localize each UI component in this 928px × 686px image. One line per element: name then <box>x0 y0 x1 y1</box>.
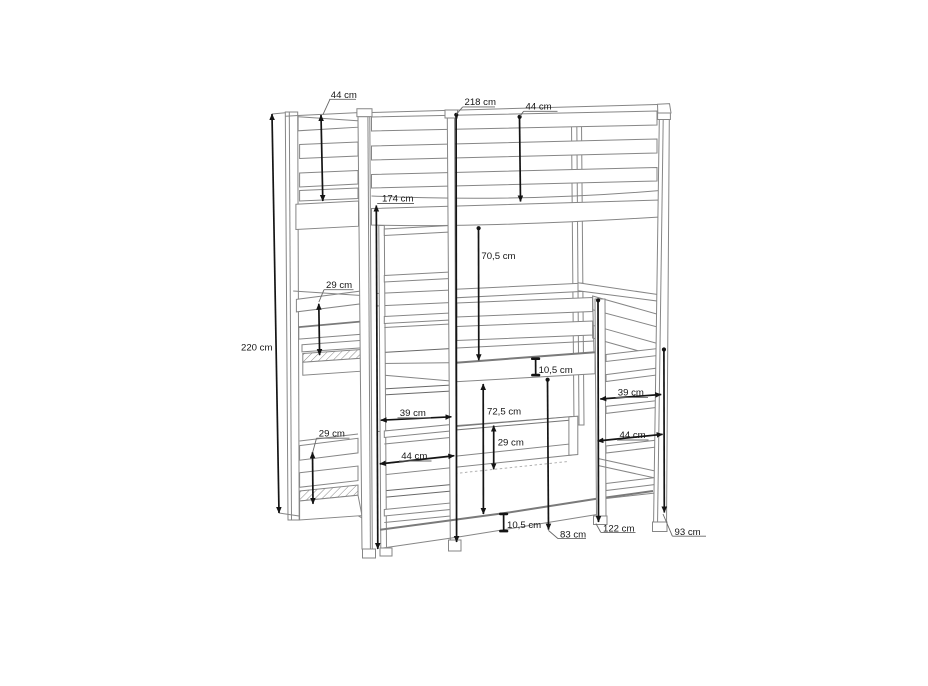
svg-text:29 cm: 29 cm <box>326 280 352 291</box>
svg-text:83 cm: 83 cm <box>560 529 586 540</box>
svg-text:72,5 cm: 72,5 cm <box>487 407 521 418</box>
svg-text:39 cm: 39 cm <box>400 408 426 419</box>
svg-text:220 cm: 220 cm <box>241 343 272 354</box>
svg-text:44 cm: 44 cm <box>401 451 427 462</box>
svg-text:218 cm: 218 cm <box>465 97 496 108</box>
svg-text:29 cm: 29 cm <box>498 438 524 449</box>
svg-text:29 cm: 29 cm <box>319 429 345 440</box>
svg-text:44 cm: 44 cm <box>331 90 357 101</box>
svg-text:70,5 cm: 70,5 cm <box>481 251 515 262</box>
svg-text:10,5 cm: 10,5 cm <box>539 365 573 376</box>
svg-text:174 cm: 174 cm <box>382 194 413 205</box>
svg-text:122 cm: 122 cm <box>603 523 634 534</box>
svg-text:39 cm: 39 cm <box>618 388 644 399</box>
svg-text:44 cm: 44 cm <box>620 430 646 441</box>
svg-text:44 cm: 44 cm <box>526 102 552 113</box>
svg-text:93 cm: 93 cm <box>675 527 701 538</box>
svg-text:10,5 cm: 10,5 cm <box>507 520 541 531</box>
